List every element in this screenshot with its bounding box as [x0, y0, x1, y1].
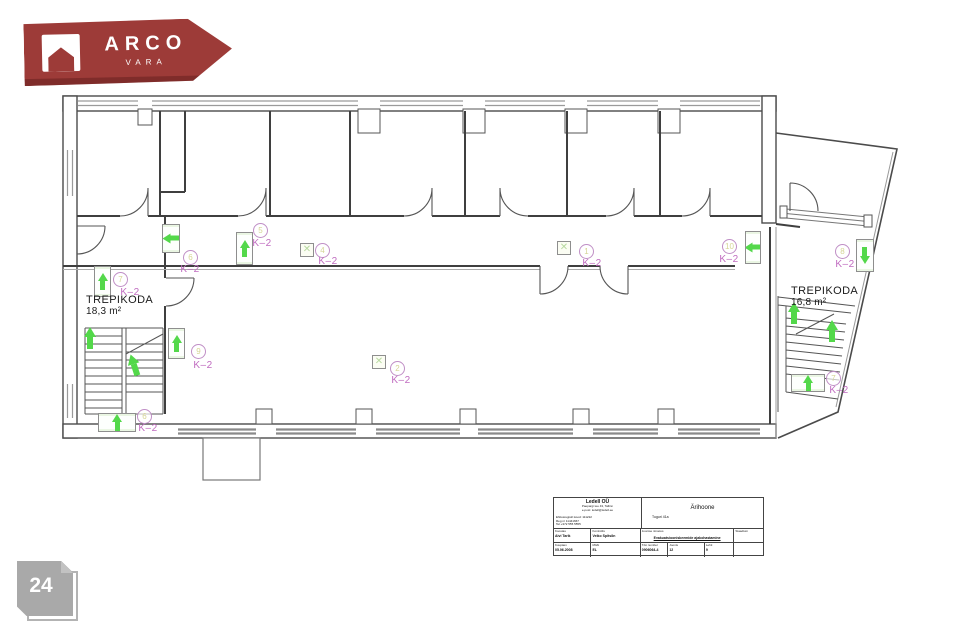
- room-area: 18,3 m²: [86, 306, 153, 318]
- project-title: Ärihoone: [642, 505, 763, 511]
- evacuation-arrow-icon: [125, 353, 143, 378]
- k2-label: K–2: [391, 375, 410, 386]
- k2-label: K–2: [582, 258, 601, 269]
- evacuation-arrow-icon: [98, 273, 108, 290]
- exit-sign-box: [94, 266, 111, 297]
- cell-date: Kuupäev 05.06.2008: [554, 543, 591, 557]
- k2-label: K–2: [193, 360, 212, 371]
- cell-scale: Mõõt EL: [591, 543, 640, 557]
- evacuation-arrow: [826, 320, 838, 342]
- cell-drawing-number: Joonis 12: [668, 543, 704, 557]
- k2-label: K–2: [719, 254, 738, 265]
- equipment-circle-icon: 5: [253, 223, 268, 238]
- title-block-company-cell: Ledell OÜ Paepargi tee 43, Tallinn e-pos…: [554, 498, 642, 528]
- cell-sheets: Lehti 9: [705, 543, 735, 557]
- cell-koostas: Koostas Aivi Tarik: [554, 529, 591, 542]
- cell-empty: [734, 543, 763, 557]
- call-point-icon: ✕: [300, 243, 314, 257]
- cell-kontrollis: Kontrollis Veiko Spitsõn: [591, 529, 640, 542]
- room-name: TREPIKODA: [791, 285, 858, 297]
- exit-sign-box: [791, 374, 825, 392]
- evacuation-arrow-icon: [860, 247, 870, 264]
- exit-sign-box: [745, 231, 761, 264]
- company-subline: e-post: ledell@ledell.ee: [555, 509, 640, 513]
- call-point-icon: ✕: [557, 241, 571, 255]
- evacuation-arrow-icon: [172, 335, 182, 352]
- equipment-circle-icon: 7: [826, 371, 841, 386]
- evacuation-arrow-icon: [112, 414, 122, 431]
- equipment-circle-icon: 2: [390, 361, 405, 376]
- page-number: 24: [29, 574, 52, 598]
- cell-job-number-label: Töö number 0906064-4: [641, 543, 669, 557]
- k2-label: K–2: [318, 256, 337, 267]
- exit-sign-box: [236, 232, 253, 265]
- evacuation-arrow-icon: [240, 240, 250, 257]
- room-label-trepikoda-right: TREPIKODA 16,8 m²: [791, 285, 858, 309]
- k2-label: K–2: [180, 264, 199, 275]
- k2-label: K–2: [252, 238, 271, 249]
- exit-sign-box: [168, 328, 185, 359]
- safety-markers-layer: ✕✕✕765411089267K–2K–2K–2K–2K–2K–2K–2K–2K…: [0, 0, 960, 640]
- title-block-project-cell: Ärihoone Tuguri 41a: [642, 498, 763, 528]
- project-address: Tuguri 41a: [652, 515, 669, 519]
- company-notes: Ehitusregistri kood: 111222 Reg nr 11441…: [556, 516, 592, 527]
- drawing-title-block: Ledell OÜ Paepargi tee 43, Tallinn e-pos…: [553, 497, 764, 556]
- k2-label: K–2: [138, 423, 157, 434]
- exit-sign-box: [856, 239, 874, 272]
- call-point-icon: ✕: [372, 355, 386, 369]
- evacuation-arrow: [84, 327, 96, 349]
- page-number-badge: 24: [17, 561, 73, 616]
- k2-label: K–2: [829, 385, 848, 396]
- equipment-circle-icon: 10: [722, 239, 737, 254]
- cell-staadium: Staadium: [734, 529, 763, 542]
- evacuation-arrow-icon: [745, 243, 761, 253]
- room-name: TREPIKODA: [86, 294, 153, 306]
- room-label-trepikoda-left: TREPIKODA 18,3 m²: [86, 294, 153, 318]
- room-area: 16,8 m²: [791, 297, 858, 309]
- exit-sign-box: [98, 413, 136, 432]
- equipment-circle-icon: 6: [183, 250, 198, 265]
- equipment-circle-icon: 6: [137, 409, 152, 424]
- evacuation-arrow-icon: [826, 320, 838, 342]
- evacuation-arrow-icon: [163, 234, 180, 244]
- equipment-circle-icon: 8: [835, 244, 850, 259]
- cell-drawing-name: Joonise nimetus Evakuatsiooniskeemide aj…: [641, 529, 735, 542]
- equipment-circle-icon: 1: [579, 244, 594, 259]
- k2-label: K–2: [835, 259, 854, 270]
- evacuation-arrow: [128, 354, 140, 376]
- equipment-circle-icon: 9: [191, 344, 206, 359]
- evacuation-arrow-icon: [803, 375, 813, 392]
- exit-sign-box: [162, 224, 180, 253]
- evacuation-arrow-icon: [84, 327, 96, 349]
- evacuation-plan-page: ARCO VARA: [0, 0, 960, 640]
- equipment-circle-icon: 7: [113, 272, 128, 287]
